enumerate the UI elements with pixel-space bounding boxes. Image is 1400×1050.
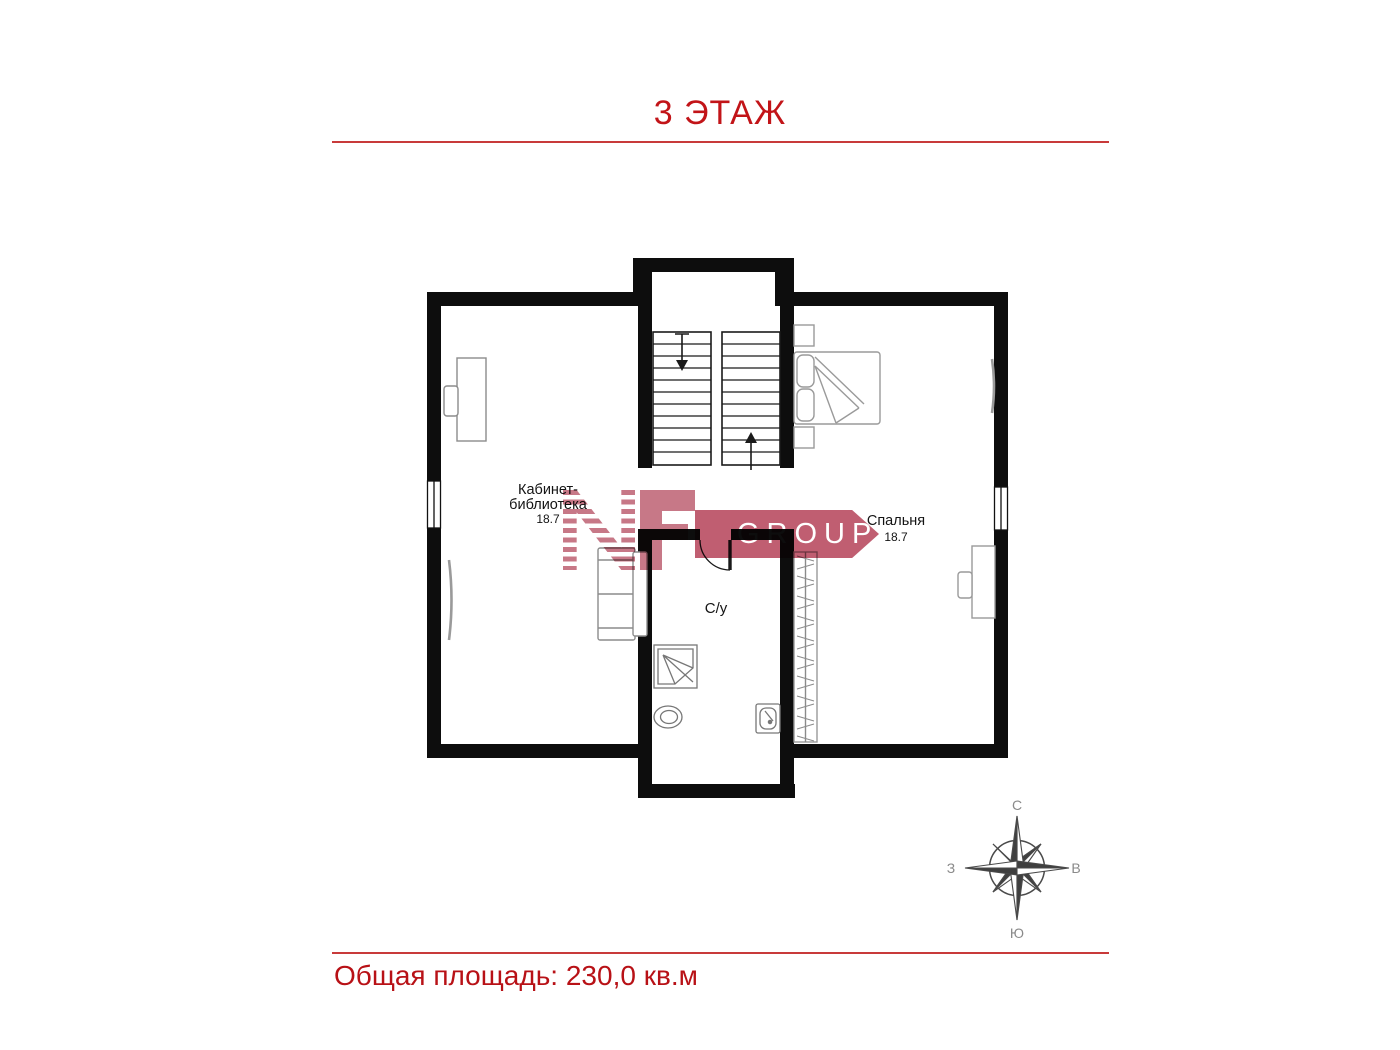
chair-office	[444, 386, 458, 416]
page: 3 ЭТАЖ Общая площадь: 230,0 кв.м	[0, 0, 1400, 1050]
logo-group-text: GROUP	[695, 510, 879, 558]
radiator-arc-right	[992, 359, 994, 413]
room-area-bedroom: 18.7	[884, 530, 908, 544]
wall-stairwell-left	[638, 306, 652, 468]
wall-top-left	[427, 292, 652, 306]
compass-south-label: Ю	[1010, 925, 1024, 941]
wall-stairwell-right	[780, 306, 794, 468]
window-right	[995, 487, 1008, 530]
nf-group-logo: GROUP	[563, 490, 883, 570]
logo-letter-f-mid-arm	[640, 524, 688, 540]
compass-cardinal-spikes	[965, 816, 1069, 920]
wardrobe	[794, 552, 817, 742]
pillow-1	[797, 355, 814, 387]
wall-top-right	[780, 292, 1008, 306]
wall-bump-bottom	[638, 784, 795, 798]
compass-north-label: С	[1012, 797, 1022, 813]
bathroom-fixtures	[654, 645, 780, 733]
nightstand-top	[794, 325, 814, 346]
wall-right-lower	[994, 530, 1008, 758]
wall-right-upper	[994, 292, 1008, 487]
logo-letter-f-top-arm	[640, 490, 695, 511]
compass-rose: С Ю З В	[947, 797, 1081, 941]
logo-letter-n	[563, 490, 635, 570]
chair-bedroom	[958, 572, 972, 598]
compass-west-label: З	[947, 860, 955, 876]
wall-bottom-left	[427, 744, 638, 758]
window-left	[428, 481, 441, 528]
wall-left-lower	[427, 528, 441, 758]
logo-banner: GROUP	[695, 510, 879, 558]
shower	[654, 645, 697, 688]
staircase	[653, 332, 780, 470]
radiator-arc-left	[449, 560, 452, 640]
room-label-bathroom: С/у	[705, 600, 728, 617]
desk-office	[444, 358, 486, 441]
wall-bump-top	[633, 258, 794, 272]
compass-east-label: В	[1071, 860, 1080, 876]
desk-bedroom	[958, 546, 995, 618]
wall-bottom-right	[794, 744, 1008, 758]
bed	[794, 352, 880, 424]
room-area-office: 18.7	[536, 512, 560, 526]
toilet	[654, 706, 682, 728]
pillow-2	[797, 389, 814, 421]
sink	[756, 704, 780, 733]
nightstand-bottom	[794, 427, 814, 448]
stairs-down-arrow	[675, 334, 689, 371]
wall-left-upper	[427, 292, 441, 481]
